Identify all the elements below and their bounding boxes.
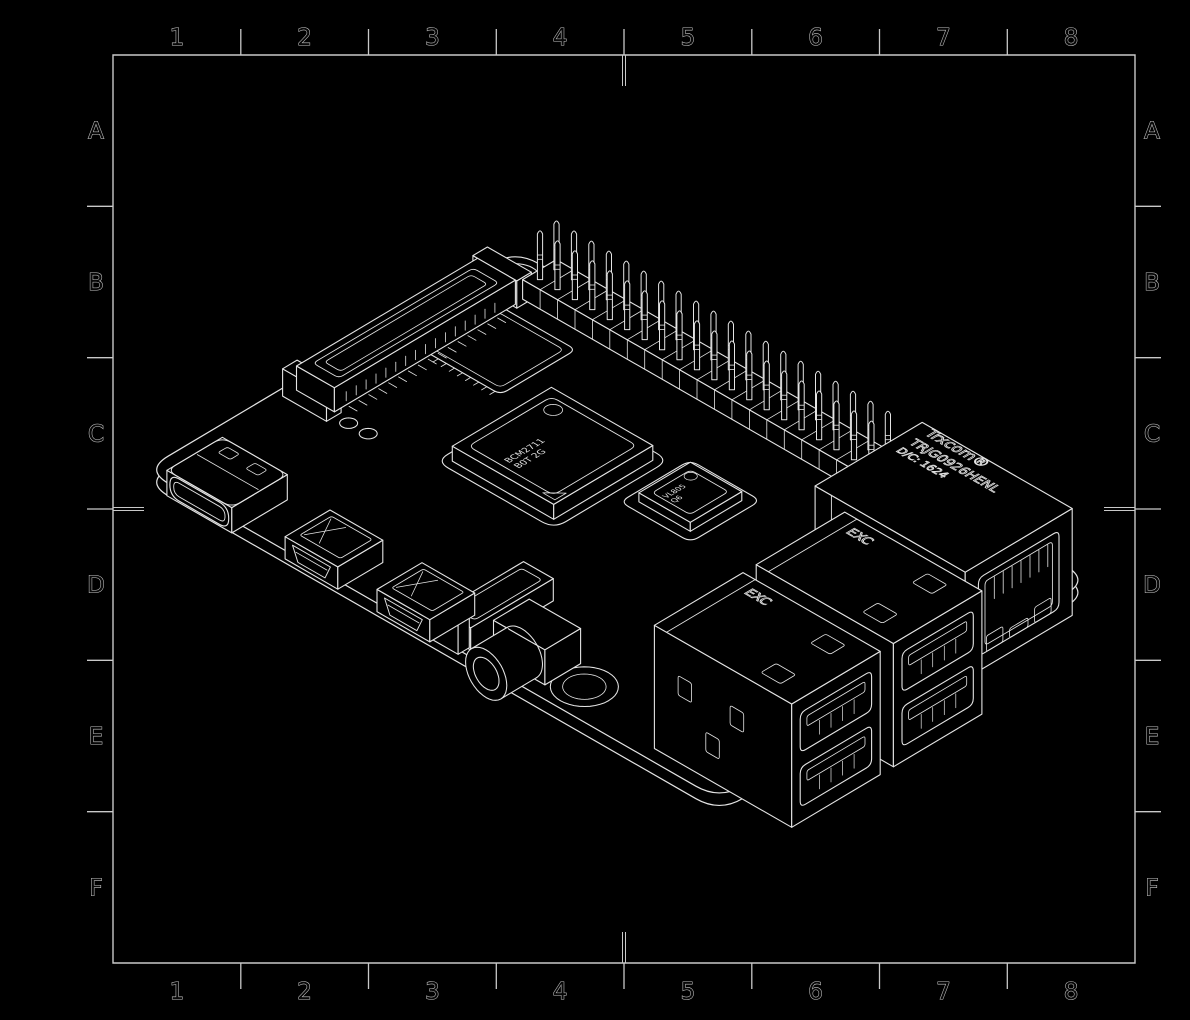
- grid-col-label-bottom-7: 7: [936, 979, 951, 1005]
- grid-row-label-left-A: A: [88, 119, 104, 145]
- grid-col-label-top-7: 7: [936, 25, 951, 51]
- grid-col-label-bottom-5: 5: [681, 979, 696, 1005]
- technical-drawing-canvas: 1122334455667788AABBCCDDEEFF®BCM2711B0T …: [0, 0, 1190, 1020]
- grid-col-label-bottom-6: 6: [808, 979, 823, 1005]
- grid-col-label-top-1: 1: [170, 25, 185, 51]
- grid-row-label-right-E: E: [1145, 724, 1160, 750]
- grid-col-label-bottom-4: 4: [553, 979, 568, 1005]
- grid-col-label-bottom-8: 8: [1064, 979, 1079, 1005]
- grid-row-label-right-D: D: [1143, 573, 1161, 599]
- grid-row-label-left-F: F: [89, 875, 102, 901]
- grid-col-label-bottom-3: 3: [425, 979, 440, 1005]
- grid-col-label-bottom-1: 1: [170, 979, 185, 1005]
- grid-row-label-left-B: B: [88, 270, 104, 296]
- pcb-board: ®BCM2711B0T 2GVL805Q6Trxcom®TRJG0926HENL…: [157, 221, 1078, 827]
- grid-row-label-left-C: C: [88, 421, 104, 447]
- grid-col-label-top-6: 6: [808, 25, 823, 51]
- grid-row-label-right-C: C: [1144, 421, 1160, 447]
- grid-row-label-left-D: D: [87, 573, 105, 599]
- grid-row-label-right-B: B: [1144, 270, 1160, 296]
- grid-col-label-top-3: 3: [425, 25, 440, 51]
- grid-col-label-bottom-2: 2: [297, 979, 312, 1005]
- drawing-sheet: 1122334455667788AABBCCDDEEFF®BCM2711B0T …: [0, 0, 1190, 1020]
- grid-col-label-top-2: 2: [297, 25, 312, 51]
- grid-col-label-top-8: 8: [1064, 25, 1079, 51]
- grid-row-label-left-E: E: [89, 724, 104, 750]
- grid-row-label-right-A: A: [1144, 119, 1160, 145]
- grid-col-label-top-5: 5: [681, 25, 696, 51]
- grid-col-label-top-4: 4: [553, 25, 568, 51]
- grid-row-label-right-F: F: [1145, 875, 1158, 901]
